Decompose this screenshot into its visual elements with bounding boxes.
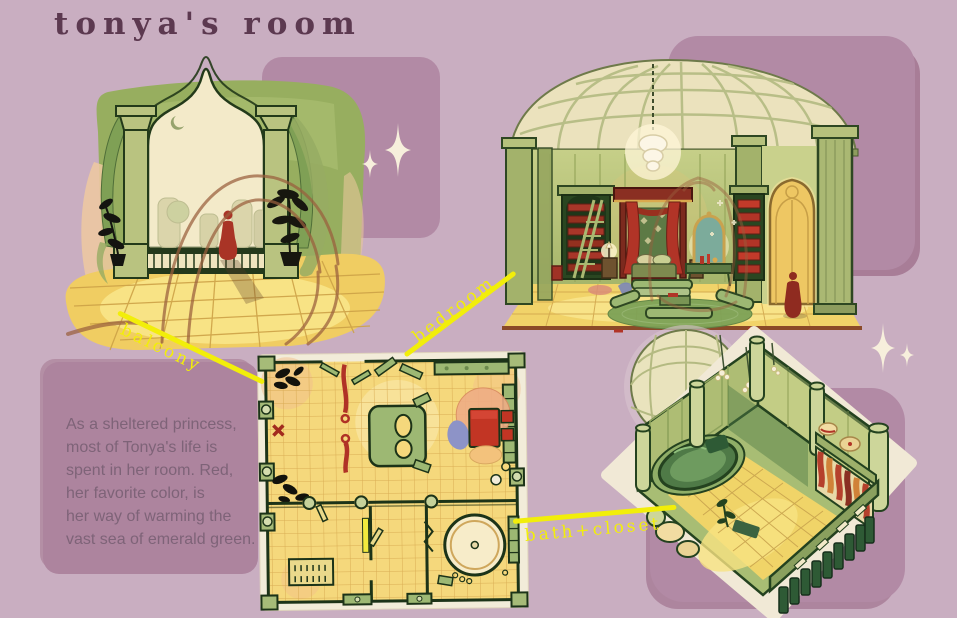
balcony-illustration	[50, 52, 390, 352]
page-title: tonya's room	[54, 6, 362, 42]
description-line: As a sheltered princess,	[66, 413, 256, 436]
lattice-dome	[508, 60, 858, 156]
right-column	[812, 126, 858, 314]
description-line: her favorite color, is	[66, 482, 256, 505]
description-text: As a sheltered princess, most of Tonya's…	[66, 413, 256, 551]
description-line: her way of warming the	[66, 505, 256, 528]
description-line: most of Tonya's life is	[66, 436, 256, 459]
callout-label-bedroom: bedroom	[409, 272, 499, 347]
closet-piano	[289, 559, 333, 586]
concept-art-page: tonya's room As a sheltered princess, mo…	[0, 0, 957, 618]
mirror-strip	[362, 518, 368, 552]
floor-plan-illustration	[256, 348, 531, 613]
sparkle-icon	[352, 112, 422, 192]
description-line: spent in her room. Red,	[66, 459, 256, 482]
sparkle-icon	[855, 315, 935, 385]
description-line: vast sea of emerald green.	[66, 528, 256, 551]
bookshelf-right	[730, 186, 768, 280]
bedroom-illustration	[498, 50, 870, 340]
